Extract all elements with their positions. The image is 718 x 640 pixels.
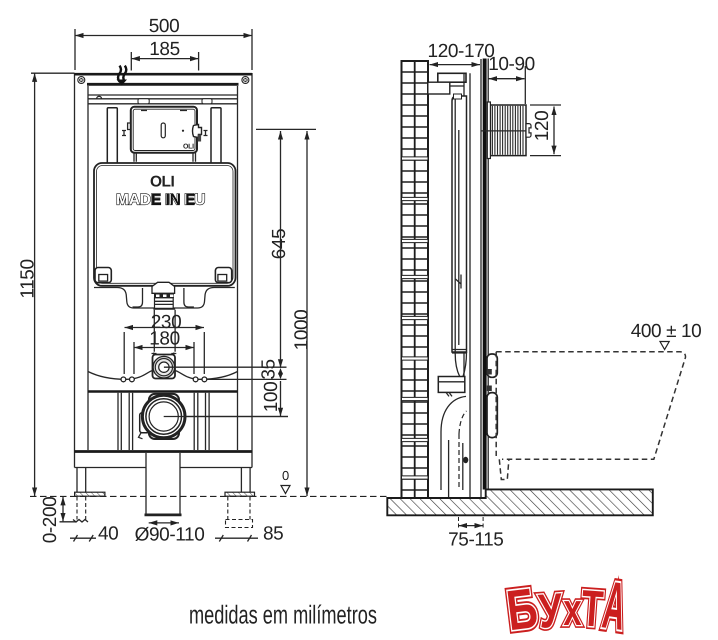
- svg-text:1150: 1150: [18, 259, 39, 298]
- svg-text:400 ± 10: 400 ± 10: [631, 321, 702, 342]
- svg-text:У: У: [537, 584, 565, 638]
- svg-text:35: 35: [259, 359, 280, 379]
- svg-text:х: х: [563, 585, 581, 635]
- svg-text:0: 0: [282, 468, 289, 483]
- svg-text:120: 120: [532, 111, 553, 142]
- svg-text:medidas em milímetros: medidas em milímetros: [189, 601, 377, 629]
- svg-text:40: 40: [98, 524, 118, 545]
- svg-text:180: 180: [149, 329, 180, 350]
- svg-text:645: 645: [269, 229, 290, 260]
- svg-text:10-90: 10-90: [488, 54, 535, 75]
- svg-text:100: 100: [261, 382, 282, 413]
- svg-text:OLI: OLI: [183, 143, 194, 150]
- svg-text:0-200: 0-200: [40, 497, 61, 544]
- svg-text:E: E: [151, 192, 161, 209]
- svg-text:E: E: [185, 192, 195, 209]
- svg-text:N: N: [170, 192, 181, 209]
- svg-text:Ø90-110: Ø90-110: [135, 525, 205, 546]
- svg-text:185: 185: [149, 39, 180, 60]
- svg-text:OLI: OLI: [150, 174, 175, 191]
- svg-text:1000: 1000: [292, 310, 313, 351]
- svg-text:75-115: 75-115: [448, 530, 503, 551]
- svg-text:500: 500: [149, 16, 180, 37]
- svg-text:85: 85: [263, 524, 283, 545]
